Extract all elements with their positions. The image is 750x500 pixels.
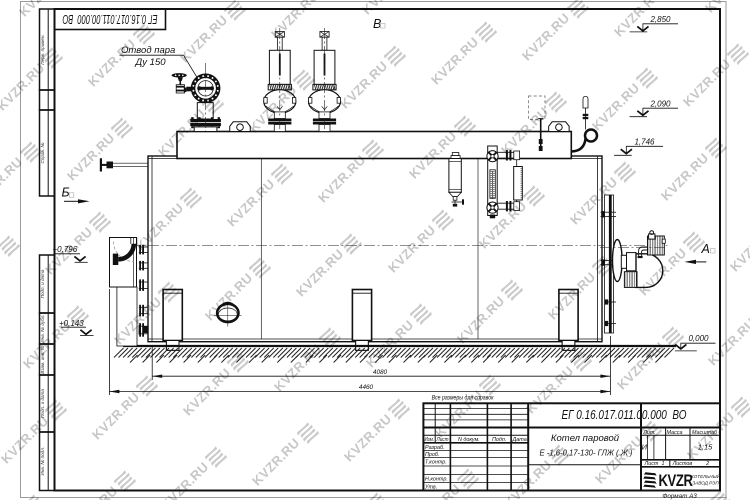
svg-text:Утв.: Утв. [424,485,437,491]
svg-text:Изм.: Изм. [425,437,435,443]
svg-text:Т.контр.: Т.контр. [425,460,447,466]
svg-text:Котел паровой: Котел паровой [551,433,620,444]
svg-text:В: В [373,17,381,31]
svg-text:KVZR.RU: KVZR.RU [89,389,142,442]
svg-text:0,000: 0,000 [688,334,709,343]
svg-text:ЗАВОД РЭП: ЗАВОД РЭП [692,481,719,486]
svg-text:1: 1 [662,461,665,467]
svg-text:Б: Б [62,186,70,200]
svg-text:KVZR.RU: KVZR.RU [177,12,230,65]
svg-text:Перв. примен.: Перв. примен. [40,34,45,65]
svg-text:Проб.: Проб. [425,452,439,458]
svg-text:4080: 4080 [373,369,388,376]
svg-text:Инв. № подл.: Инв. № подл. [40,447,45,476]
svg-text:KVZR.RU: KVZR.RU [42,224,95,277]
svg-text:KVZR.RU: KVZR.RU [727,221,750,274]
svg-text:KVZR: KVZR [659,472,693,490]
svg-text:Листов: Листов [672,461,693,467]
svg-text:4460: 4460 [359,384,374,391]
svg-text:KVZR.RU: KVZR.RU [337,58,390,111]
svg-text:2,090: 2,090 [649,99,671,108]
svg-text:KVZR.RU: KVZR.RU [0,60,48,113]
svg-text:Разраб.: Разраб. [425,445,445,451]
svg-text:Лист: Лист [644,461,659,467]
svg-text:Подп.: Подп. [492,437,506,443]
svg-text:KVZR.RU: KVZR.RU [428,34,481,87]
svg-text:N докум.: N докум. [458,437,480,443]
svg-text:KVZR.RU: KVZR.RU [0,154,26,207]
svg-text:KVZR.RU: KVZR.RU [85,36,138,89]
svg-text:Масса: Масса [667,430,683,436]
svg-text:Ду 150: Ду 150 [135,57,167,68]
svg-text:KVZR.RU: KVZR.RU [519,10,572,63]
svg-text:Формат А3: Формат А3 [662,493,697,500]
svg-text:KVZR.RU: KVZR.RU [249,435,302,488]
svg-text:КОТЕЛЬНЫЙ: КОТЕЛЬНЫЙ [691,472,721,479]
svg-text:ЕГ 0.16.017.011.00.000 ВО: ЕГ 0.16.017.011.00.000 ВО [562,407,687,422]
svg-text:Дата: Дата [511,437,526,443]
svg-text:2: 2 [705,461,709,467]
svg-text:KVZR.RU: KVZR.RU [589,80,642,133]
svg-text:KVZR.RU: KVZR.RU [20,318,73,371]
svg-text:KVZR.RU: KVZR.RU [271,341,324,394]
svg-text:KVZR.RU: KVZR.RU [705,315,750,368]
svg-text:Н.контр.: Н.контр. [425,477,448,483]
svg-text:Подп. и дата: Подп. и дата [40,269,45,298]
svg-text:1,746: 1,746 [634,138,655,147]
svg-text:KVZR.RU: KVZR.RU [268,0,321,42]
svg-text:KVZR.RU: KVZR.RU [341,411,394,464]
svg-text:KVZR.RU: KVZR.RU [658,150,711,203]
svg-text:KVZR.RU: KVZR.RU [64,130,117,183]
svg-text:2,850: 2,850 [649,15,671,24]
svg-text:KVZR.RU: KVZR.RU [158,459,211,500]
svg-text:KVZR.RU: KVZR.RU [680,56,733,109]
svg-text:KVZR.RU: KVZR.RU [0,248,4,301]
